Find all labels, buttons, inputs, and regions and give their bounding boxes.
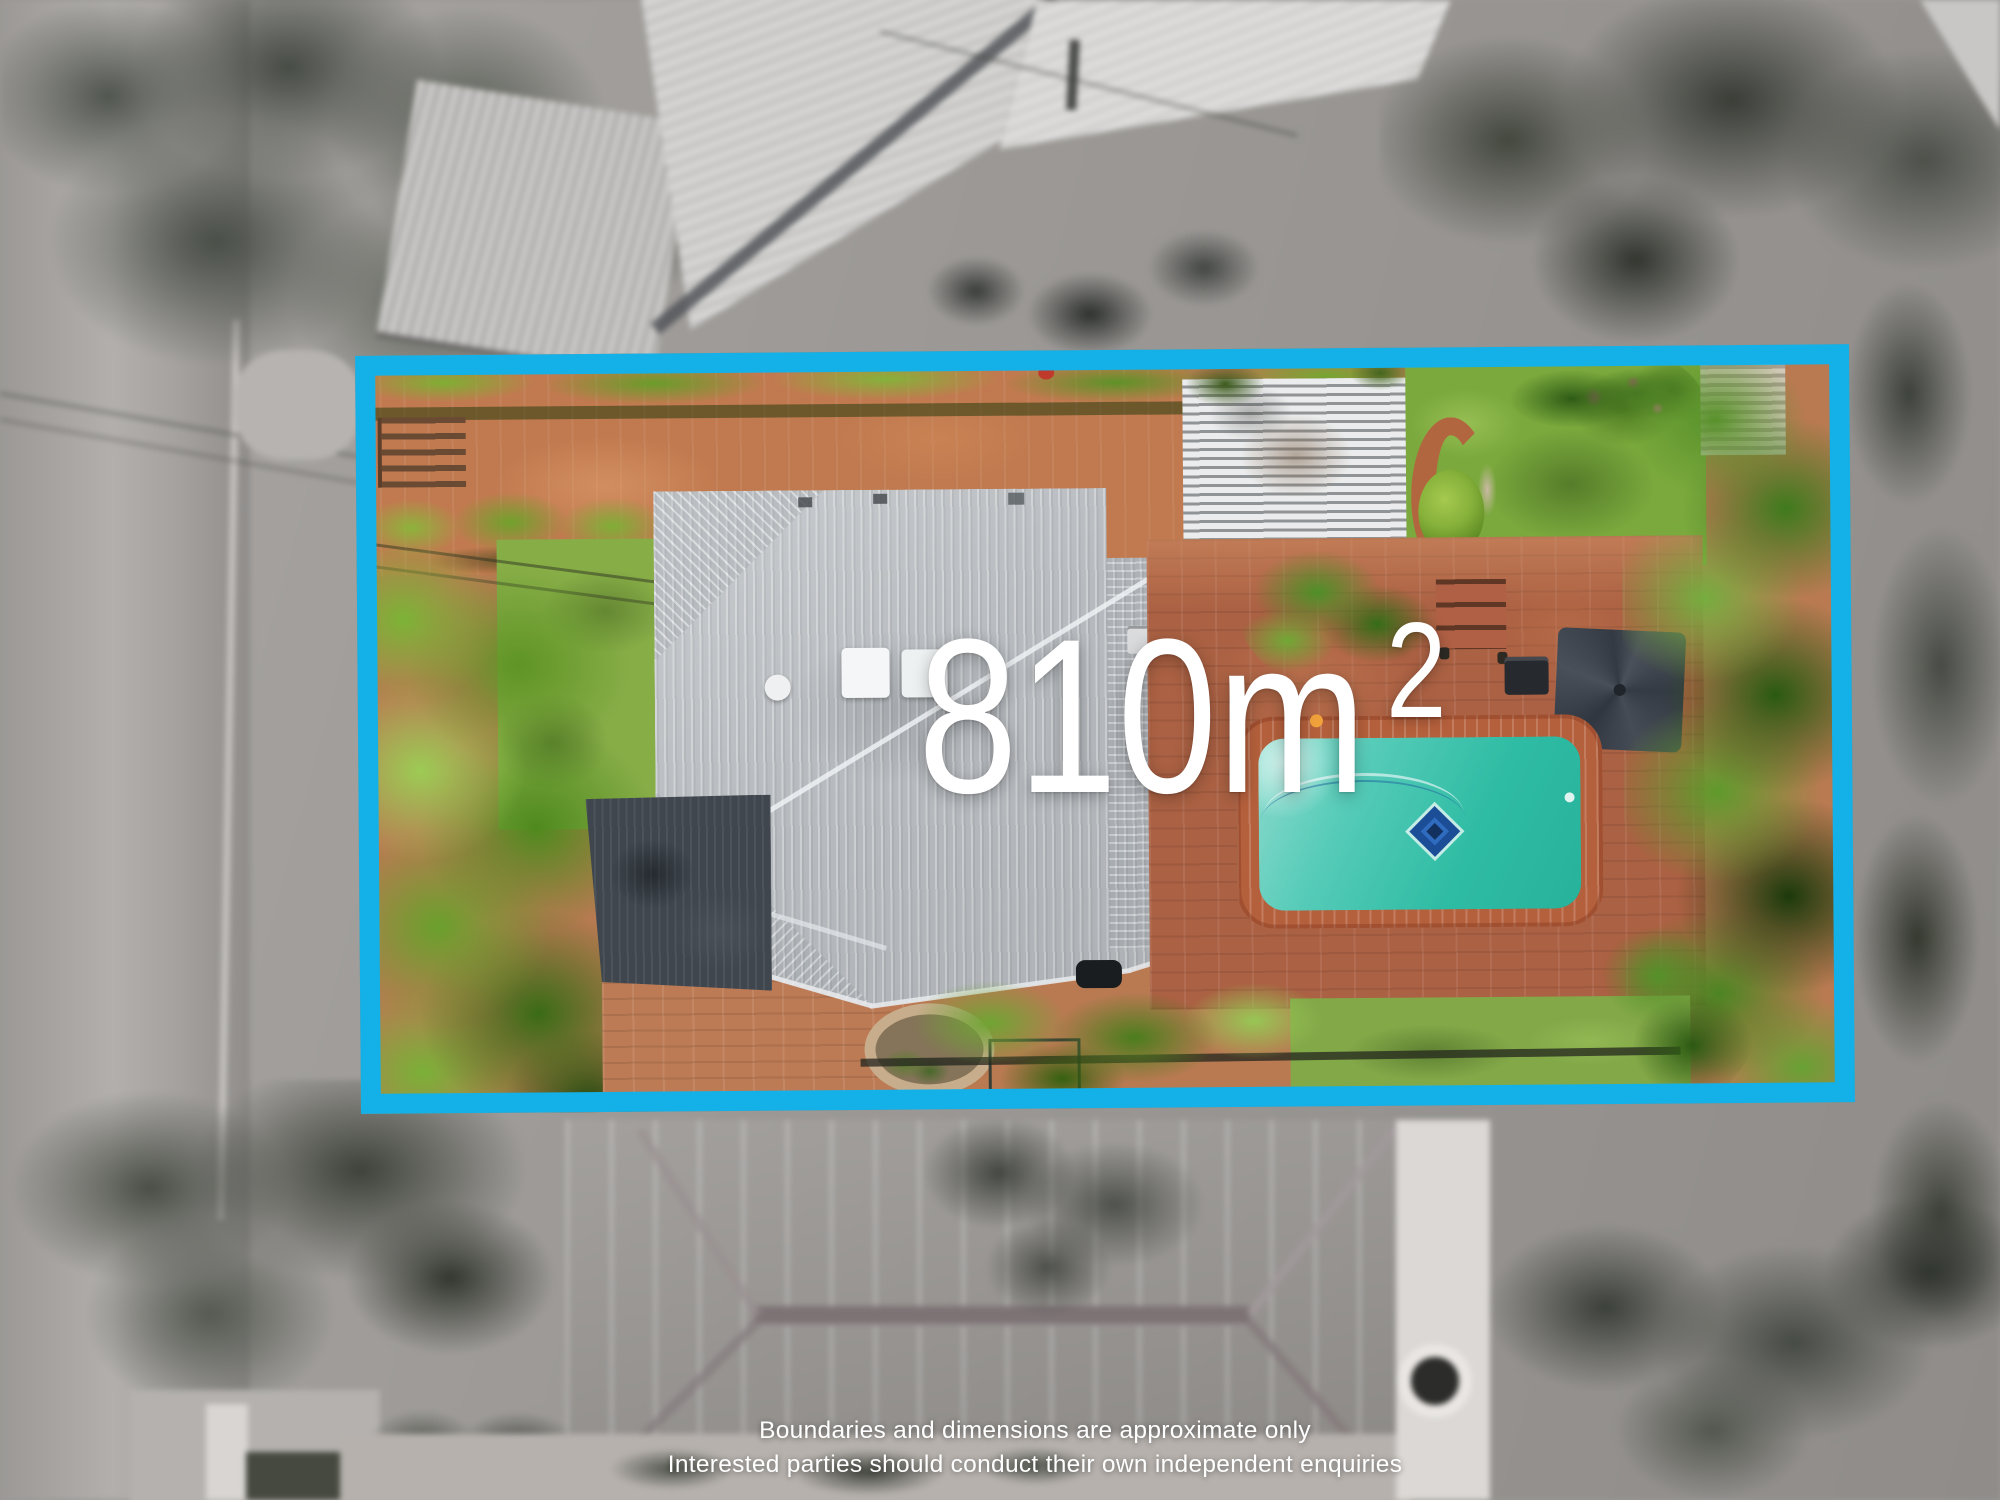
disclaimer-line-1: Boundaries and dimensions are approximat… xyxy=(535,1414,1535,1448)
area-value: 810 xyxy=(918,593,1217,839)
disclaimer: Boundaries and dimensions are approximat… xyxy=(535,1414,1535,1482)
disclaimer-line-2: Interested parties should conduct their … xyxy=(535,1448,1535,1482)
area-superscript: 2 xyxy=(1386,602,1447,738)
area-label: 810m xyxy=(918,606,1367,826)
area-unit: m xyxy=(1217,593,1366,839)
aerial-photo-scene: 810m 2 Boundaries and dimensions are app… xyxy=(0,0,2000,1500)
